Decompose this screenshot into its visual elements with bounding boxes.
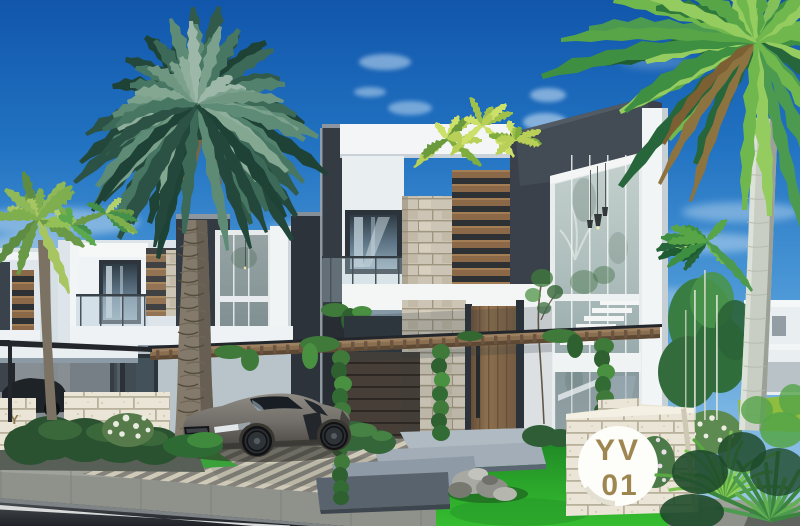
svg-text:YV: YV [595,434,641,467]
svg-text:01: 01 [601,469,638,502]
